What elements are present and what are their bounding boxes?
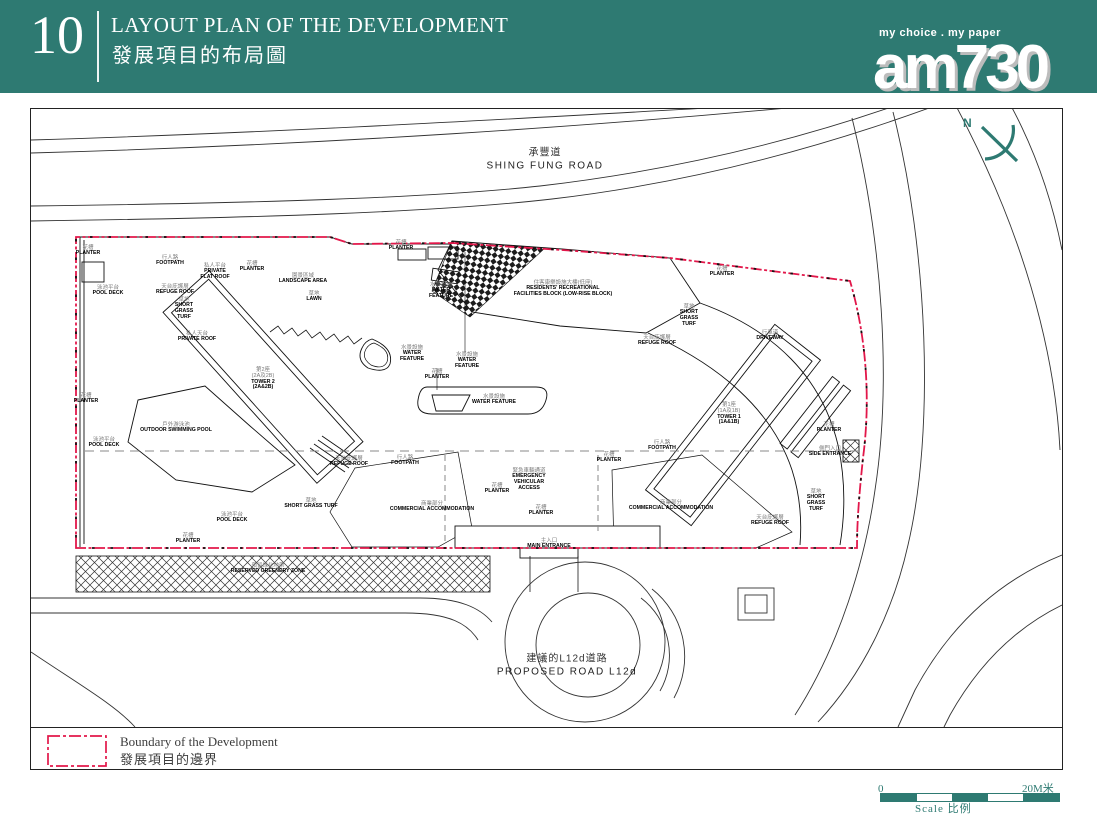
plan-label-30: 花槽PLANTER [485,483,510,495]
plan-label-27: 行人路FOOTPATH [648,440,676,452]
plan-label-1: 泳池平台POOL DECK [93,285,124,297]
legend-label-zh: 發展項目的邊界 [120,751,278,769]
plan-label-41: 花槽PLANTER [74,393,99,405]
plan-label-34: 主入口MAIN ENTRANCE [527,538,571,550]
plan-label-9: 園景區域LANDSCAPE AREA [279,273,327,285]
plan-label-15: 花槽PLANTER [425,369,450,381]
plan-label-17: 住客康樂設施大樓(低座)RESIDENTS' RECREATIONAL FACI… [514,280,612,298]
plan-label-39: 泳池平台POOL DECK [89,437,120,449]
brand-block: my choice . my paper am730 [873,28,1073,98]
plan-label-3: 私人平台PRIVATE FLAT ROOF [200,263,229,281]
plan-label-28: 花槽PLANTER [597,452,622,464]
north-label: N [963,117,972,129]
plan-label-22: 第1座 (1A及1B)TOWER 1 (1A&1B) [717,402,741,426]
plan-label-4: 花槽PLANTER [240,261,265,273]
plan-label-7: 私人天台PRIVATE ROOF [178,331,216,343]
plan-label-16: 水景設施WATER FEATURE [472,394,516,406]
plan-label-38: 戶外游泳池OUTDOOR SWIMMING POOL [140,422,212,434]
plan-label-36: 草地SHORT GRASS TURF [284,498,337,510]
plan-label-13: 水景設施WATER FEATURE [400,345,424,363]
plan-label-0: 花槽PLANTER [76,245,101,257]
legend-divider [30,727,1063,728]
plan-label-31: 花槽PLANTER [529,505,554,517]
plan-label-2: 行人路FOOTPATH [156,255,184,267]
plan-label-40: 泳池平台POOL DECK [217,512,248,524]
header-divider [97,11,99,82]
scale-bar [880,793,1060,802]
legend-text: Boundary of the Development 發展項目的邊界 [120,733,278,768]
plan-label-21: 行車道DRIVEWAY [756,330,783,342]
plan-label-6: 草地SHORT GRASS TURF [175,297,193,321]
plan-label-43: 預留綠化地帶RESERVED GREENERY ZONE [231,563,306,575]
plan-label-37: 天台庇護層REFUGE ROOF [330,456,368,468]
am730-logo: am730 [873,39,1073,98]
plan-label-5: 天台庇護層REFUGE ROOF [156,284,194,296]
legend-label-en: Boundary of the Development [120,733,278,751]
page-number: 10 [30,8,84,62]
page-title-en: LAYOUT PLAN OF THE DEVELOPMENT [111,14,508,37]
plan-label-35: 行人路FOOTPATH [391,455,419,467]
plan-label-33: 商業部分COMMERCIAL ACCOMMODATION [629,500,713,512]
plan-label-23: 花槽PLANTER [817,422,842,434]
plan-label-25: 草地SHORT GRASS TURF [807,489,825,513]
plan-label-29: 緊急車輛通道EMERGENCY VEHICULAR ACCESS [512,468,545,492]
plan-label-26: 天台庇護層REFUGE ROOF [751,515,789,527]
plan-label-10: 草地LAWN [306,291,321,303]
plan-label-11: 花槽PLANTER [389,240,414,252]
plan-label-8: 第2座 (2A及2B)TOWER 2 (2A&2B) [251,367,275,391]
plan-label-42: 花槽PLANTER [176,533,201,545]
plan-label-12: 水景設施WATER FEATURE [429,282,453,300]
plan-label-32: 商業部分COMMERCIAL ACCOMMODATION [390,501,474,513]
plan-label-14: 水景設施WATER FEATURE [455,352,479,370]
page-title-zh: 發展項目的布局圖 [112,44,288,68]
plan-label-19: 草地SHORT GRASS TURF [680,304,698,328]
plan-label-18: 花槽PLANTER [710,266,735,278]
plan-label-20: 天台庇護層REFUGE ROOF [638,335,676,347]
road-label-1: 建議的L12d道路PROPOSED ROAD L12d [497,654,637,679]
plan-label-24: 側門入口SIDE ENTRANCE [809,446,851,458]
road-label-0: 承豐道SHING FUNG ROAD [487,148,604,173]
